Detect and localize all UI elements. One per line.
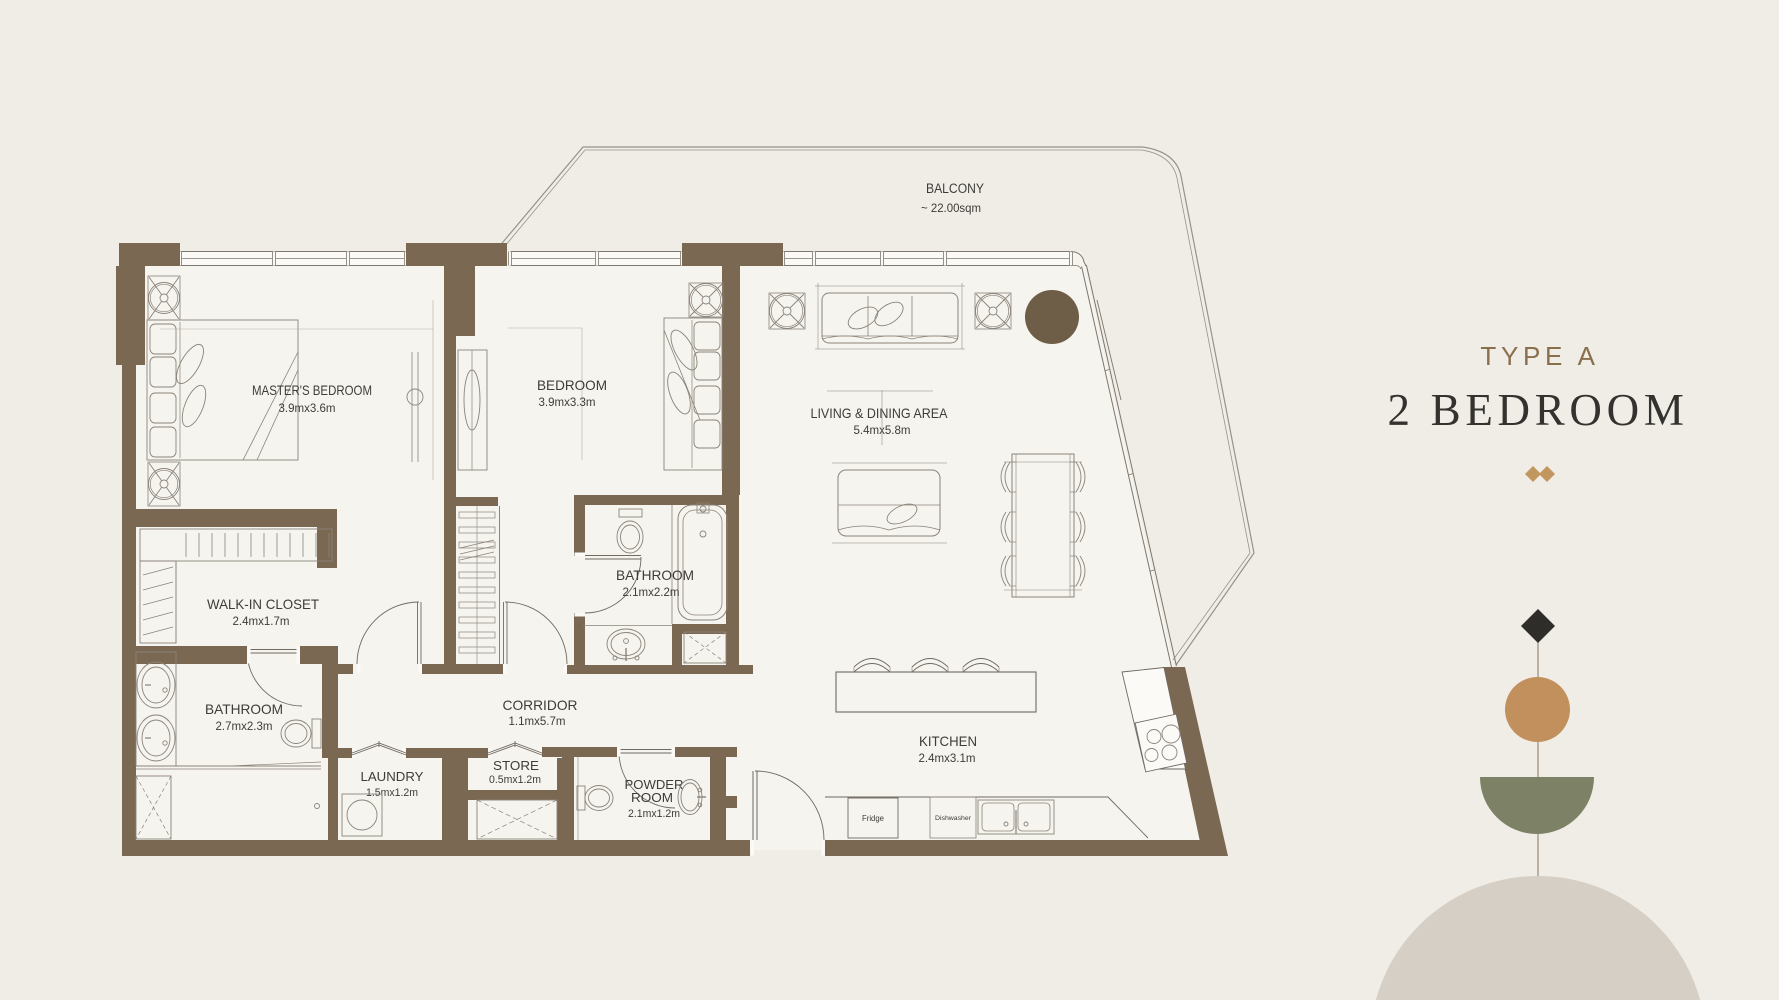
svg-text:2 BEDROOM: 2 BEDROOM	[1387, 385, 1688, 435]
svg-text:2.7mx2.3m: 2.7mx2.3m	[216, 719, 273, 733]
svg-text:POWDER: POWDER	[625, 778, 684, 792]
svg-text:WALK-IN CLOSET: WALK-IN CLOSET	[207, 597, 320, 612]
svg-text:CORRIDOR: CORRIDOR	[503, 698, 578, 713]
svg-text:BATHROOM: BATHROOM	[616, 568, 694, 583]
svg-text:2.1mx1.2m: 2.1mx1.2m	[628, 808, 680, 820]
svg-text:BEDROOM: BEDROOM	[537, 378, 607, 393]
svg-text:~ 22.00sqm: ~ 22.00sqm	[921, 203, 981, 215]
svg-text:Dishwasher: Dishwasher	[935, 815, 972, 822]
svg-text:STORE: STORE	[493, 759, 539, 773]
svg-text:KITCHEN: KITCHEN	[919, 734, 977, 749]
svg-text:3.9mx3.6m: 3.9mx3.6m	[279, 401, 336, 415]
svg-text:2.4mx3.1m: 2.4mx3.1m	[919, 751, 976, 765]
svg-text:1.5mx1.2m: 1.5mx1.2m	[366, 787, 418, 799]
svg-text:TYPE A: TYPE A	[1480, 341, 1599, 371]
svg-text:1.1mx5.7m: 1.1mx5.7m	[509, 714, 566, 728]
svg-text:LAUNDRY: LAUNDRY	[361, 770, 425, 784]
svg-text:BATHROOM: BATHROOM	[205, 702, 283, 717]
svg-text:0.5mx1.2m: 0.5mx1.2m	[489, 774, 541, 786]
svg-text:3.9mx3.3m: 3.9mx3.3m	[539, 395, 596, 409]
svg-text:BALCONY: BALCONY	[926, 181, 984, 196]
svg-text:MASTER'S BEDROOM: MASTER'S BEDROOM	[252, 383, 372, 398]
svg-text:LIVING & DINING AREA: LIVING & DINING AREA	[811, 406, 949, 421]
svg-text:Fridge: Fridge	[862, 814, 885, 823]
svg-text:2.1mx2.2m: 2.1mx2.2m	[623, 585, 680, 599]
svg-text:2.4mx1.7m: 2.4mx1.7m	[233, 614, 290, 628]
svg-text:ROOM: ROOM	[631, 791, 673, 805]
